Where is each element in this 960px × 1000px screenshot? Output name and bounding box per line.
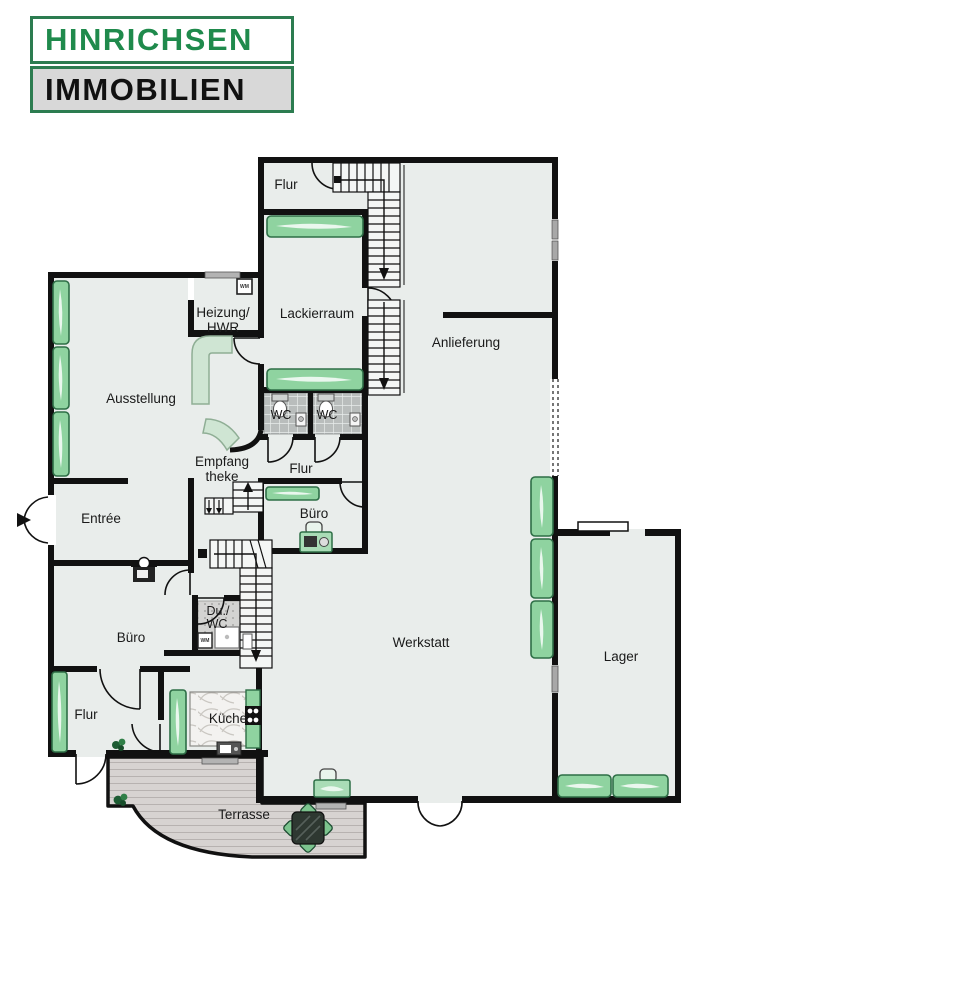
stairs-mid <box>368 300 404 395</box>
hall-cabinet <box>52 672 67 752</box>
display-bench <box>53 281 69 344</box>
svg-text:WM: WM <box>201 638 210 644</box>
room-label-empfang-2: theke <box>205 469 238 484</box>
room-label-heizung-1: Heizung/ <box>196 305 250 320</box>
kitchen-cabinet <box>170 690 186 754</box>
sink-icon <box>350 413 360 426</box>
room-label-heizung-2: HWR <box>207 320 239 335</box>
display-bench <box>53 412 69 476</box>
room-label-buero-small: Büro <box>300 506 329 521</box>
room-label-buero-left: Büro <box>117 630 146 645</box>
room-label-kueche: Küche <box>209 711 247 726</box>
stove-icon <box>245 706 261 725</box>
room-label-ausstellung: Ausstellung <box>106 391 176 406</box>
display-bench <box>53 347 69 409</box>
room-label-anlieferung: Anlieferung <box>432 335 500 350</box>
svg-text:WM: WM <box>240 284 249 290</box>
room-label-duwc-2: WC <box>207 617 228 631</box>
room-label-flur-mid: Flur <box>289 461 313 476</box>
room-label-werkstatt: Werkstatt <box>393 635 450 650</box>
workbench <box>531 477 553 536</box>
office-shelf <box>266 487 319 500</box>
storage-bench <box>613 775 668 797</box>
storage-bench <box>558 775 611 797</box>
sink-icon <box>217 742 241 755</box>
room-label-entree: Entrée <box>81 511 121 526</box>
room-label-terrasse: Terrasse <box>218 807 270 822</box>
room-label-wc2: WC <box>317 408 338 422</box>
floorplan-svg: WM WM <box>0 0 960 1000</box>
main-entrance-door <box>17 495 56 545</box>
workbench <box>531 539 553 598</box>
workbench <box>267 216 363 237</box>
workbench <box>267 369 363 390</box>
workbench <box>531 601 553 658</box>
washing-machine-icon: WM <box>237 279 252 294</box>
room-label-empfang-1: Empfang <box>195 454 249 469</box>
printer-icon <box>131 558 157 583</box>
room-label-flur-bottom: Flur <box>74 707 98 722</box>
room-label-wc1: WC <box>271 408 292 422</box>
room-label-lackierraum: Lackierraum <box>280 306 354 321</box>
sink-icon <box>296 413 306 426</box>
roller-door-dashed <box>550 379 560 476</box>
room-label-flur-top: Flur <box>274 177 298 192</box>
room-label-lager: Lager <box>604 649 639 664</box>
room-label-duwc-1: Du./ <box>207 604 230 618</box>
washing-machine-icon: WM <box>198 633 212 648</box>
floorplan-page: HINRICHSEN IMMOBILIEN <box>0 0 960 1000</box>
sliding-door <box>578 522 628 531</box>
toilet-icon <box>243 634 252 649</box>
